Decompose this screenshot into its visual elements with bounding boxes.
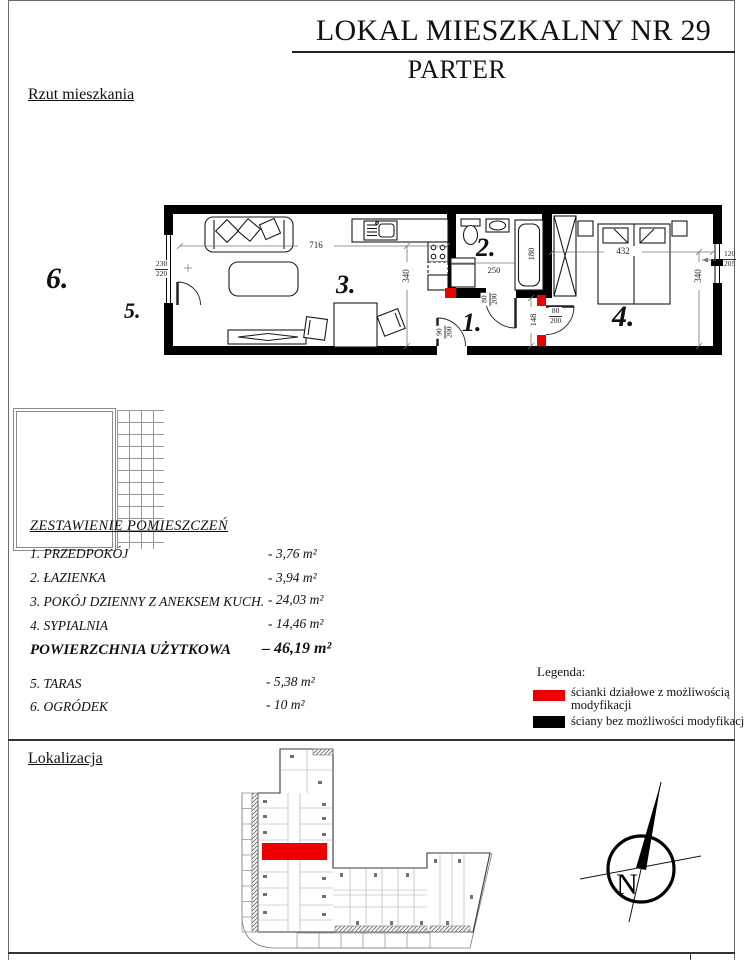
dim-entry-door: 90 200 bbox=[436, 326, 454, 339]
dim-bedroom-width: 432 bbox=[604, 246, 642, 256]
room-label-bath: 2. bbox=[476, 233, 496, 263]
dim-living-width: 716 bbox=[298, 240, 334, 250]
schedule-row-label: 1. PRZEDPOKÓJ bbox=[30, 546, 128, 562]
page-border-right bbox=[734, 0, 735, 960]
schedule-total-label: POWIERZCHNIA UŻYTKOWA bbox=[30, 642, 231, 659]
dim-bath-width: 250 bbox=[478, 265, 510, 275]
schedule-total-value: – 46,19 m² bbox=[262, 640, 331, 658]
page-border-top bbox=[8, 0, 735, 1]
legend-item-walls: ściany bez możliwości modyfikacji bbox=[571, 715, 744, 728]
dim-tub-length: 180 bbox=[526, 242, 536, 266]
highlighted-unit bbox=[262, 843, 327, 860]
schedule-row-value: - 10 m² bbox=[266, 697, 305, 713]
room-label-living: 3. bbox=[336, 270, 356, 300]
room-label-terrace: 5. bbox=[124, 298, 141, 324]
dim-bedroom-door: 80 200 bbox=[549, 307, 562, 325]
sofa bbox=[205, 217, 293, 252]
floor-plan-drawing bbox=[0, 200, 744, 360]
coffee-table bbox=[229, 262, 298, 296]
dim-balcony-door: 230 220 bbox=[155, 260, 168, 278]
schedule-row-label: 3. POKÓJ DZIENNY Z ANEKSEM KUCH. bbox=[30, 594, 264, 610]
legend-swatch-black bbox=[533, 716, 565, 728]
dim-bedroom-depth: 340 bbox=[693, 262, 703, 290]
site-plan bbox=[230, 745, 510, 957]
legend-item-partitions: ścianki działowe z możliwością modyfikac… bbox=[571, 686, 743, 712]
legend-swatch-red bbox=[533, 690, 565, 701]
dim-bath-door: 80 200 bbox=[481, 293, 499, 306]
schedule-row-label: 6. OGRÓDEK bbox=[30, 699, 108, 715]
schedule-row-value: - 3,94 m² bbox=[268, 570, 317, 586]
schedule-title: ZESTAWIENIE POMIESZCZEŃ bbox=[30, 518, 228, 535]
building-outline bbox=[258, 749, 490, 932]
schedule-row-value: - 24,03 m² bbox=[268, 592, 323, 608]
schedule-row-label: 5. TARAS bbox=[30, 676, 82, 692]
schedule-row-value: - 14,46 m² bbox=[268, 616, 323, 632]
location-section-label: Lokalizacja bbox=[28, 750, 103, 768]
compass-needle bbox=[636, 782, 661, 870]
bed-group bbox=[578, 221, 687, 304]
section-divider bbox=[8, 739, 735, 741]
footer-divider bbox=[690, 952, 691, 960]
dim-hall-depth: 148 bbox=[528, 307, 538, 333]
plan-section-label: Rzut mieszkania bbox=[28, 86, 134, 104]
dining-set bbox=[304, 303, 405, 347]
schedule-row-value: - 5,38 m² bbox=[266, 674, 315, 690]
title-block: LOKAL MIESZKALNY NR 29 bbox=[292, 14, 735, 53]
compass: N bbox=[580, 770, 710, 930]
room-label-bedroom: 4. bbox=[612, 300, 635, 334]
tv-bench bbox=[228, 330, 306, 344]
schedule-row-label: 4. SYPIALNIA bbox=[30, 618, 108, 634]
compass-north-label: N bbox=[616, 868, 638, 901]
schedule-row-value: - 3,76 m² bbox=[268, 546, 317, 562]
room-label-garden: 6. bbox=[46, 262, 69, 296]
room-label-hall: 1. bbox=[462, 308, 482, 338]
dim-living-depth: 340 bbox=[401, 262, 411, 290]
dim-right-window: 120 205 bbox=[723, 250, 736, 268]
floor-plan: 6. 5. 3. 1. 2. 4. 716 340 250 180 148 43… bbox=[0, 200, 744, 360]
kitchen-unit bbox=[352, 219, 448, 290]
schedule-row-label: 2. ŁAZIENKA bbox=[30, 570, 106, 586]
page-title: LOKAL MIESZKALNY NR 29 bbox=[292, 14, 735, 48]
wardrobe bbox=[554, 216, 576, 296]
legend-title: Legenda: bbox=[537, 664, 585, 680]
page: LOKAL MIESZKALNY NR 29 PARTER Rzut miesz… bbox=[0, 0, 744, 960]
page-subtitle: PARTER bbox=[292, 55, 622, 85]
page-border-left bbox=[8, 0, 9, 960]
